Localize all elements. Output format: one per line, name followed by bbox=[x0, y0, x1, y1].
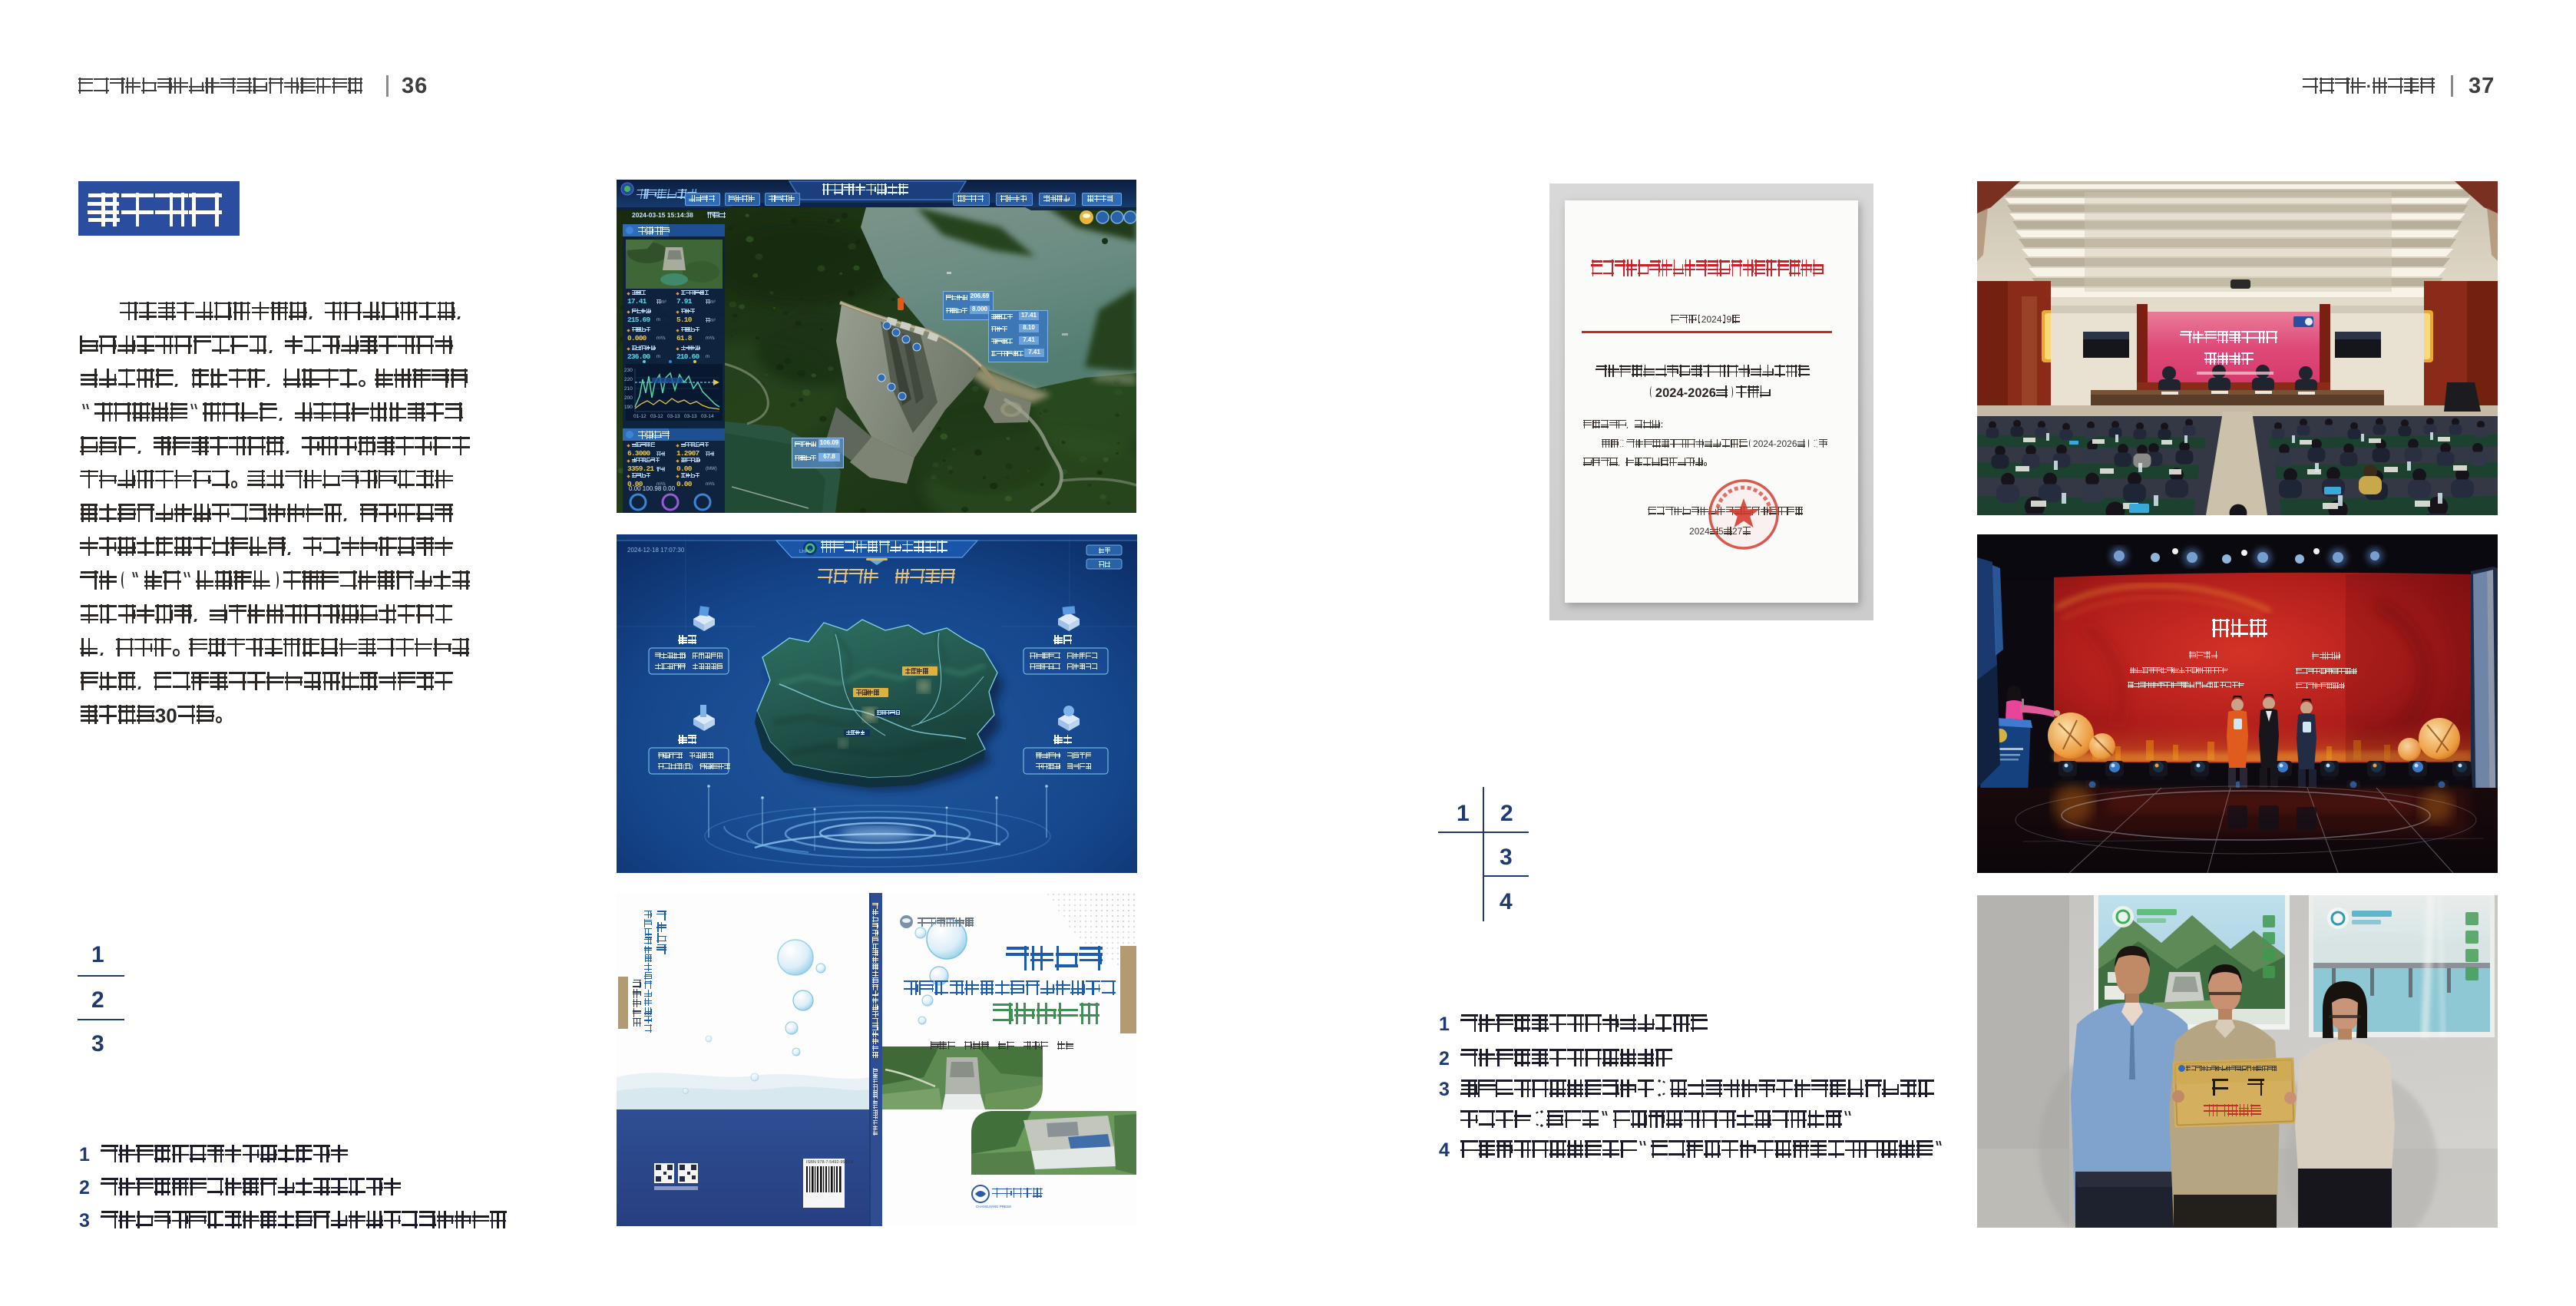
svg-text:03-13: 03-13 bbox=[667, 414, 680, 419]
svg-text:210: 210 bbox=[624, 386, 633, 392]
svg-text:200: 200 bbox=[624, 395, 633, 401]
svg-text:98.00: 98.00 bbox=[813, 1195, 824, 1200]
svg-text:190: 190 bbox=[624, 405, 633, 410]
svg-text:03-14: 03-14 bbox=[701, 414, 714, 419]
svg-text:03-13: 03-13 bbox=[684, 414, 697, 419]
svg-text:230: 230 bbox=[624, 368, 633, 373]
svg-text:01-12: 01-12 bbox=[633, 414, 646, 419]
svg-text:03-12: 03-12 bbox=[650, 414, 663, 419]
svg-text:ISBN 978-7-5492-9569-8: ISBN 978-7-5492-9569-8 bbox=[806, 1160, 853, 1165]
svg-text:CHANGJIANG PRESS: CHANGJIANG PRESS bbox=[976, 1205, 1011, 1208]
svg-text:220: 220 bbox=[624, 377, 633, 382]
svg-text:2024-03-15 15:14:38: 2024-03-15 15:14:38 bbox=[632, 211, 693, 219]
